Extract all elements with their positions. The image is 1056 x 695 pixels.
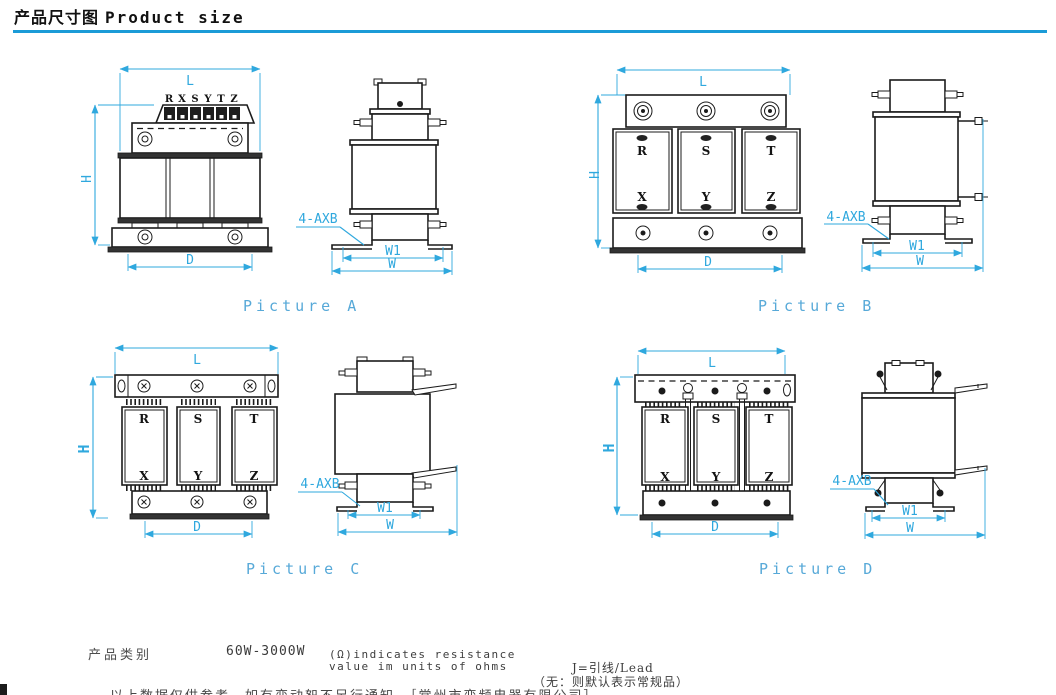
picture-a-drawing: L H R X S Y T Z	[60, 55, 510, 317]
phase-label-r: R	[139, 412, 150, 426]
phase-label-x: X	[637, 190, 647, 204]
phase-label-t: T	[250, 412, 259, 426]
page-title-zh: 产品尺寸图	[14, 10, 99, 27]
bolt-icon	[634, 102, 652, 120]
phase-label-y: Y	[701, 190, 711, 204]
bolt-icon	[761, 102, 779, 120]
coil-r: R X	[642, 407, 688, 485]
foot-right	[428, 240, 452, 249]
page-title: 产品尺寸图Product size	[14, 4, 245, 28]
top-bracket	[635, 375, 795, 402]
foot-left	[332, 240, 372, 249]
corner-mark	[0, 684, 7, 695]
bolt-icon	[138, 132, 152, 146]
dim-label-w: W	[386, 518, 394, 533]
mount-ear-top	[412, 384, 456, 395]
page-title-en: Product size	[105, 8, 245, 27]
mount-ear-top	[955, 384, 987, 393]
dim-label-d: D	[704, 255, 712, 270]
phase-label-y: Y	[193, 469, 203, 483]
bolt-icon	[659, 388, 666, 395]
lower-clamp	[872, 206, 963, 234]
upper-clamp	[354, 114, 446, 140]
terminal-rod-bottom	[958, 194, 988, 201]
dim-label-l: L	[186, 74, 194, 89]
bolt-icon	[228, 132, 242, 146]
dim-label-h: H	[75, 444, 93, 453]
bolt-icon	[945, 91, 963, 98]
bolt-icon	[636, 226, 650, 240]
top-bracket	[132, 123, 248, 153]
dim-label-h: H	[588, 171, 603, 179]
title-underline	[13, 30, 1047, 33]
bolt-icon	[699, 226, 713, 240]
picture-c-caption: Picture C	[246, 560, 363, 578]
coil-body-side	[335, 394, 430, 474]
base-bracket	[108, 228, 272, 252]
foot-left	[337, 502, 357, 511]
coil-s: S Y	[678, 129, 735, 213]
foot-left	[866, 503, 885, 511]
picture-b-front-view: L H R X S Y	[588, 70, 805, 273]
picture-a-front-view: L H R X S Y T Z	[80, 69, 272, 271]
foot-right	[945, 234, 972, 243]
coil-t: T Z	[742, 129, 800, 213]
dim-label-h: H	[80, 175, 95, 183]
dim-label-w1: W1	[909, 239, 925, 254]
phase-label-r: R	[660, 412, 671, 426]
mount-ear-mid	[955, 466, 987, 475]
foot-right	[933, 503, 954, 511]
dim-label-l: L	[708, 356, 716, 371]
terminal-block-side	[370, 79, 430, 114]
picture-d-caption: Picture D	[759, 560, 876, 578]
bolt-icon	[354, 221, 372, 228]
phase-label-x: X	[139, 469, 149, 483]
bolt-icon	[428, 221, 446, 228]
dim-label-l: L	[193, 353, 201, 368]
coil-body	[118, 153, 262, 228]
picture-b-caption: Picture B	[758, 297, 875, 315]
bolt-icon	[763, 226, 777, 240]
bolt-icon	[354, 119, 372, 126]
phase-label-t: T	[767, 144, 776, 158]
bolt-icon	[697, 102, 715, 120]
terminal-label: Y	[203, 94, 212, 105]
picture-c-side-view: W1 W 4-AXB	[298, 357, 457, 536]
picture-c-front-view: L H R X S Y	[75, 348, 278, 538]
bolt-icon	[413, 482, 431, 489]
terminal-rod-top	[958, 118, 988, 125]
picture-d-side-view: W1 W 4-AXB	[830, 361, 987, 540]
bolt-icon	[872, 91, 890, 98]
axb-callout: 4-AXB	[298, 212, 337, 227]
coil-t: T Z	[232, 407, 277, 485]
phase-label-z: Z	[767, 190, 776, 204]
picture-d-drawing: L H	[590, 330, 1050, 592]
bolt-icon	[138, 230, 152, 244]
bolt-icon	[413, 369, 431, 376]
screw-icon	[191, 496, 203, 508]
picture-c-drawing: L H R X S Y	[60, 330, 520, 592]
dim-label-h: H	[600, 443, 618, 452]
phase-label-s: S	[702, 144, 711, 158]
dim-label-w: W	[916, 254, 924, 269]
base-bracket	[130, 491, 269, 519]
picture-b-drawing: L H R X S Y	[590, 55, 1050, 317]
bolt-icon	[712, 388, 719, 395]
bottom-clamp	[339, 474, 431, 502]
bolt-icon	[712, 500, 719, 507]
coil-r: R X	[613, 129, 672, 213]
picture-a-side-view: W1 W 4-AXB	[296, 79, 452, 275]
dim-label-w1: W1	[377, 501, 393, 516]
dim-label-d: D	[186, 253, 194, 268]
coil-body-side	[873, 112, 960, 206]
phase-label-s: S	[194, 412, 203, 426]
terminal-label: R	[165, 94, 174, 105]
coil-r: R X	[122, 407, 167, 485]
phase-label-s: S	[712, 412, 721, 426]
bolt-icon	[339, 369, 357, 376]
phase-label-x: X	[660, 470, 670, 484]
bolt-icon	[428, 119, 446, 126]
power-range-value: 60W-3000W	[226, 644, 305, 659]
top-bracket	[115, 375, 278, 397]
coil-s: S Y	[694, 407, 738, 485]
bolt-icon	[875, 480, 886, 497]
product-category-label: 产品类别	[88, 644, 152, 663]
terminal-label: X	[178, 94, 186, 105]
bolt-icon	[945, 217, 963, 224]
disclaimer-note-truncated: 以上数据仅供参考，如有变动恕不另行通知。［常州市变频电器有限公司］	[110, 685, 599, 695]
phase-label-r: R	[637, 144, 648, 158]
dim-label-d: D	[193, 520, 201, 535]
foot-right	[413, 502, 433, 511]
phase-label-z: Z	[250, 469, 259, 483]
screw-icon	[244, 380, 256, 392]
screw-icon	[244, 496, 256, 508]
upper-clamp	[872, 80, 963, 112]
dim-label-w: W	[906, 521, 914, 536]
terminal-label: S	[191, 94, 198, 105]
axb-callout: 4-AXB	[832, 474, 871, 489]
phase-label-y: Y	[711, 470, 721, 484]
phase-label-t: T	[765, 412, 774, 426]
top-clamp	[339, 357, 431, 392]
bolt-icon	[764, 500, 771, 507]
phase-label-z: Z	[765, 470, 774, 484]
picture-b-side-view: W1 W 4-AXB	[824, 80, 988, 272]
axb-callout: 4-AXB	[826, 210, 865, 225]
bolt-icon	[659, 500, 666, 507]
dim-label-d: D	[711, 520, 719, 535]
bolt-icon	[764, 388, 771, 395]
bolt-icon	[872, 217, 890, 224]
bolt-icon	[933, 480, 944, 497]
datasheet-page: 产品尺寸图Product size L H R X S Y T Z	[0, 0, 1056, 695]
axb-callout: 4-AXB	[300, 477, 339, 492]
top-bracket	[626, 95, 786, 127]
coil-s: S Y	[177, 407, 220, 485]
picture-d-front-view: L H	[600, 351, 795, 538]
screw-icon	[138, 380, 150, 392]
base-bracket	[640, 491, 793, 520]
screw-icon	[191, 380, 203, 392]
terminal-block: R X S Y T Z	[156, 94, 254, 123]
coil-t: T Z	[746, 407, 792, 485]
top-channel-bracket	[877, 361, 942, 394]
bottom-bracket	[875, 478, 944, 503]
dim-label-w: W	[388, 257, 396, 272]
bolt-icon	[228, 230, 242, 244]
screw-icon	[138, 496, 150, 508]
terminal-label: Z	[230, 94, 237, 105]
terminal-label: T	[217, 94, 225, 105]
lower-clamp	[354, 214, 446, 240]
picture-a-caption: Picture A	[243, 297, 360, 315]
dim-label-l: L	[699, 75, 707, 90]
coil-body-side	[350, 140, 438, 214]
resistance-note: (Ω)indicates resistance value im units o…	[329, 649, 516, 673]
bolt-icon	[339, 482, 357, 489]
base-bracket	[610, 218, 805, 253]
dim-label-w1: W1	[902, 504, 918, 519]
foot-left	[863, 234, 890, 243]
coil-body-side	[862, 393, 955, 478]
